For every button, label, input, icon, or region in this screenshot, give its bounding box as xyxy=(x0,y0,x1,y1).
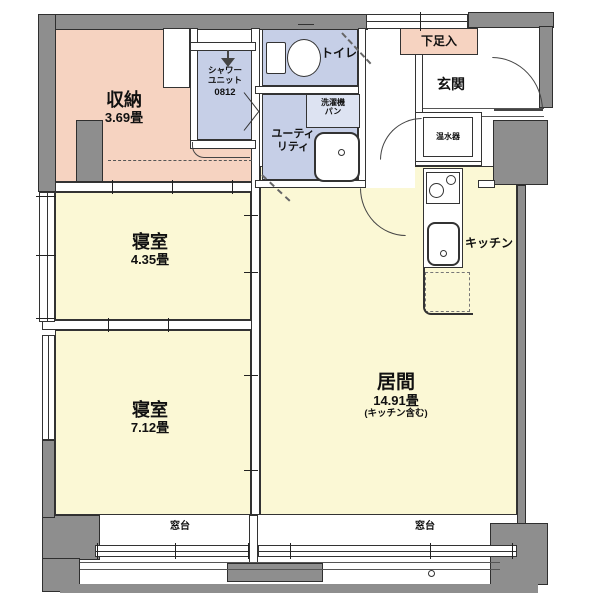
entrance-door-leaf xyxy=(494,109,543,111)
entrance-label: 玄関 xyxy=(424,76,478,92)
shoe-box: 下足入 xyxy=(400,28,478,55)
pillar-storage xyxy=(76,120,103,182)
utility-line2: リティ xyxy=(264,141,322,154)
wall-right-thin xyxy=(517,185,526,525)
entrance-door-arc xyxy=(492,57,543,111)
storage-niche xyxy=(163,28,190,88)
tick xyxy=(420,12,421,31)
kitchen-label: キッチン xyxy=(460,237,518,251)
tick xyxy=(172,180,173,194)
wall-top-left xyxy=(38,14,368,30)
bedroom-small-area: 4.35畳 xyxy=(80,253,220,268)
bedroom-large-area: 7.12畳 xyxy=(80,421,220,436)
bedroom-small-name: 寝室 xyxy=(80,232,220,253)
storage-area: 3.69畳 xyxy=(62,111,186,126)
bedroom-large-name: 寝室 xyxy=(80,400,220,421)
floor-plan: 温水器 下足入 収納 3.69畳 シャワー ユニット 0812 トイレ 洗濯 xyxy=(0,0,600,600)
wall-window-divider xyxy=(249,515,258,565)
stove-burner-large xyxy=(429,183,444,198)
washpan-line2: パン xyxy=(308,107,358,116)
kitchen-sink xyxy=(427,222,460,266)
tick xyxy=(108,318,109,332)
washing-pan-label: 洗濯機 パン xyxy=(308,98,358,116)
bedroom-small-label: 寝室 4.35畳 xyxy=(80,232,220,268)
shower-line2: ユニット xyxy=(197,76,253,86)
window-sill-right-label: 窓台 xyxy=(395,521,455,533)
window-sill-left-label: 窓台 xyxy=(150,521,210,533)
tick xyxy=(36,318,56,319)
water-heater-label: 温水器 xyxy=(436,132,460,141)
wall-shower-top xyxy=(190,42,256,51)
wall-toilet-utility xyxy=(255,86,366,94)
window-top xyxy=(366,14,468,29)
window-lock xyxy=(428,570,435,577)
shower-model: 0812 xyxy=(197,88,253,99)
tick xyxy=(244,215,258,216)
pillar-bottom-left xyxy=(42,515,100,560)
tick xyxy=(244,272,258,273)
living-name: 居間 xyxy=(320,372,472,394)
shoe-box-label: 下足入 xyxy=(421,35,457,49)
washpan-line1: 洗濯機 xyxy=(308,98,358,107)
tick xyxy=(232,180,233,194)
stove-burner-small xyxy=(446,175,456,185)
wall-left-lower xyxy=(42,440,55,518)
toilet-tank xyxy=(266,42,286,74)
shower-unit-label: シャワー ユニット 0812 xyxy=(197,66,253,98)
tick xyxy=(430,543,431,559)
tick xyxy=(290,543,291,559)
tick xyxy=(512,543,513,559)
wall-bottom-bar xyxy=(60,584,538,593)
kitchen-sink-drain xyxy=(440,250,447,257)
tick xyxy=(175,543,176,559)
storage-name: 収納 xyxy=(62,90,186,111)
bedroom-large-label: 寝室 7.12畳 xyxy=(80,400,220,436)
tick xyxy=(112,180,113,194)
tick xyxy=(244,470,258,471)
wall-living-topright xyxy=(478,180,495,188)
utility-sink-drain xyxy=(338,149,345,156)
toilet-label: トイレ xyxy=(316,47,362,61)
closet-corner-line xyxy=(192,142,250,158)
window-left-bedroom-large xyxy=(42,335,55,440)
living-label: 居間 14.91畳 (キッチン含む) xyxy=(320,372,472,420)
water-heater-box: 温水器 xyxy=(423,117,473,157)
storage-label: 収納 3.69畳 xyxy=(62,90,186,126)
window-left-bedroom-small xyxy=(39,192,55,322)
shower-head-icon xyxy=(227,50,229,58)
window-bottom-right xyxy=(258,545,517,557)
tick xyxy=(36,255,56,256)
living-note: (キッチン含む) xyxy=(320,409,472,420)
tick xyxy=(36,196,56,197)
toilet-vent xyxy=(298,24,314,30)
counter-edge xyxy=(423,268,473,315)
window-bottom-left xyxy=(95,545,250,557)
wall-between-bedrooms xyxy=(42,320,252,330)
utility-label: ユーティ リティ xyxy=(264,128,322,153)
hanger-pipe-dashed xyxy=(108,160,252,161)
tick xyxy=(244,375,258,376)
tick xyxy=(97,543,98,559)
wall-storage-bottom xyxy=(55,182,252,192)
pillar-right-upper xyxy=(493,120,548,185)
window-outer-rail xyxy=(80,562,500,570)
wall-left-upper xyxy=(38,14,56,192)
utility-line1: ユーティ xyxy=(264,128,322,141)
living-area: 14.91畳 xyxy=(320,394,472,409)
tick xyxy=(168,318,169,332)
tick xyxy=(248,543,249,559)
